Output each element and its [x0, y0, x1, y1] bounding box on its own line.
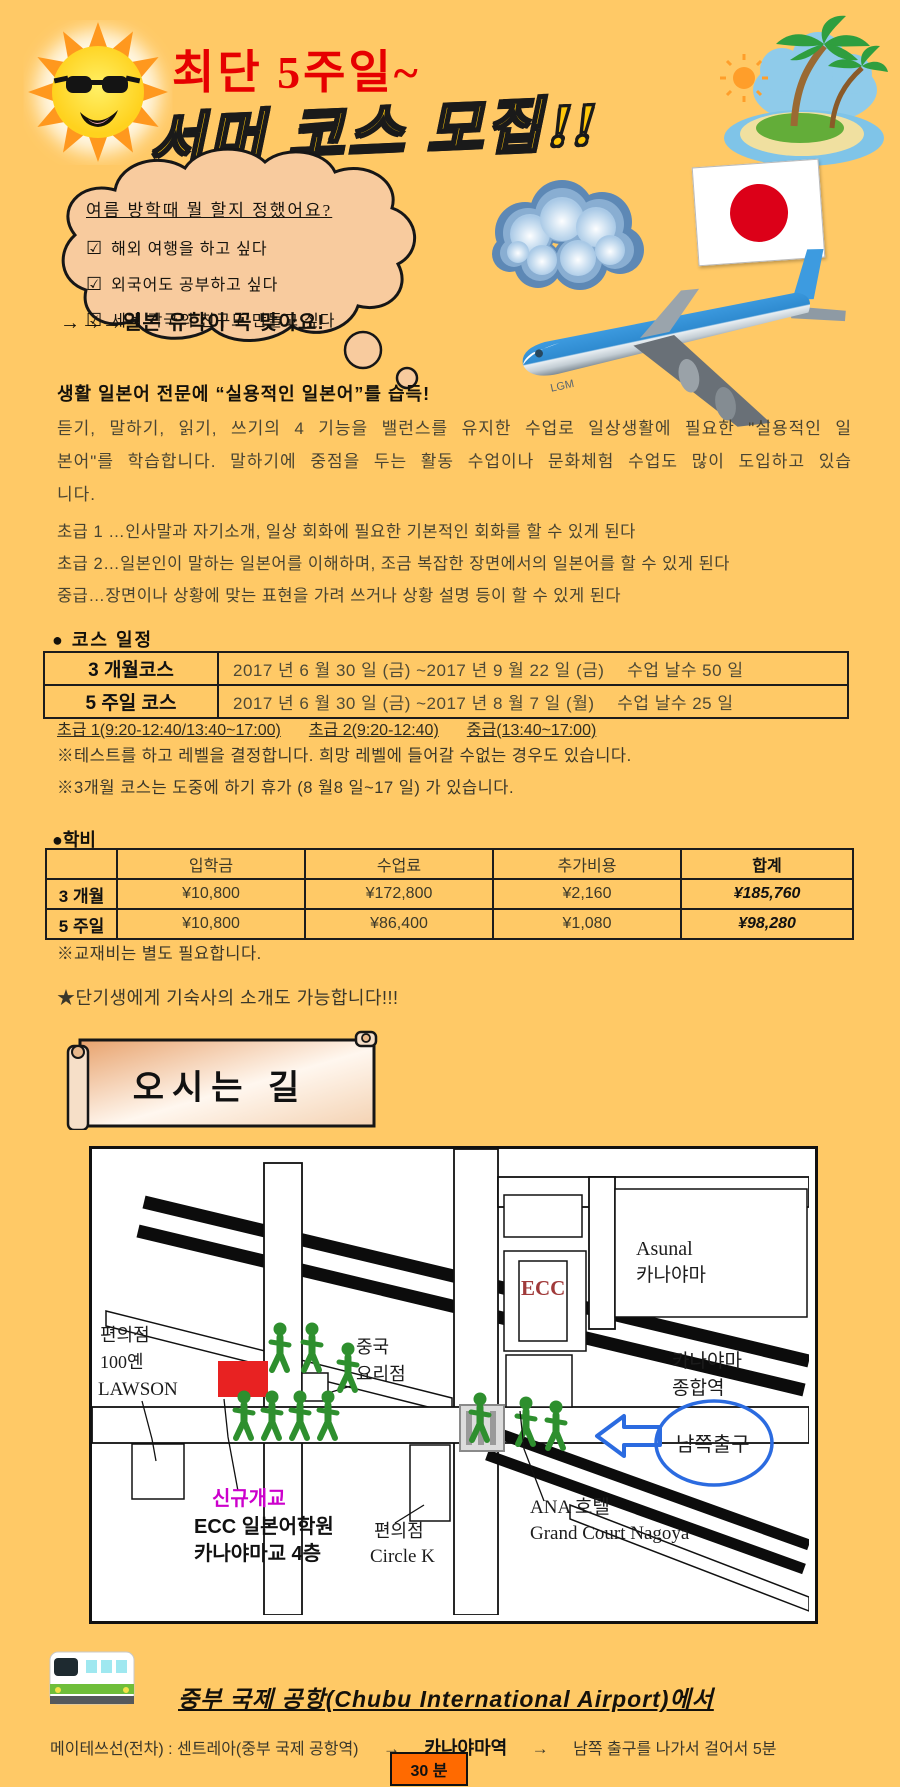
fee-row-label: 3 개월: [46, 879, 117, 909]
station-label: 종합역: [672, 1377, 724, 1399]
fee-row-label: 5 주일: [46, 909, 117, 939]
fee-extra: ¥2,160: [493, 879, 681, 909]
ana-hotel-label: ANA 호텔: [530, 1496, 610, 1518]
lawson-label: 편의점: [100, 1325, 150, 1345]
level-descriptions: 초급 1 …인사말과 자기소개, 일상 회화에 필요한 기본적인 회화를 할 수…: [57, 516, 867, 612]
time-segment: 초급 1(9:20-12:40/13:40~17:00): [57, 722, 281, 739]
bubble-item: ☑해외 여행을 하고 싶다: [86, 235, 416, 259]
time-segment: 초급 2(9:20-12:40): [309, 722, 439, 739]
column-header: [46, 849, 117, 879]
directions-banner: 오시는 길: [60, 1030, 380, 1130]
fee-total: ¥98,280: [681, 909, 853, 939]
chinese-restaurant-label: 중국: [356, 1337, 389, 1357]
time-segment: 중급(13:40~17:00): [467, 722, 597, 739]
station-label: 카나야마: [672, 1350, 742, 1372]
column-header: 수업료: [305, 849, 493, 879]
circle-k-label: Circle K: [370, 1546, 435, 1567]
checkbox-checked-icon: ☑: [86, 274, 103, 294]
japan-flag-circle: [728, 182, 790, 244]
fee-total: ¥185,760: [681, 879, 853, 909]
route-description: 메이테쓰선(전차) : 센트레아(중부 국제 공항역) → 카나야마역 → 남쪽…: [50, 1734, 895, 1760]
lawson-building: [132, 1444, 184, 1499]
level-line: 초급 1 …인사말과 자기소개, 일상 회화에 필요한 기본적인 회화를 할 수…: [57, 516, 867, 548]
course-name: 5 주일 코스: [44, 685, 218, 718]
schedule-heading: ● 코스 일정: [52, 626, 153, 652]
intro-paragraph: 듣기, 말하기, 읽기, 쓰기의 4 기능을 밸런스를 유지한 수업로 일상생활…: [57, 412, 852, 511]
map-road: [454, 1149, 498, 1615]
level-line: 초급 2…일본인이 말하는 일본어를 이해하며, 조금 복잡한 장면에서의 일본…: [57, 548, 867, 580]
asunal-label: 카나야마: [636, 1264, 706, 1286]
duration-badge: 30 분: [390, 1752, 468, 1786]
ana-hotel-label: Grand Court Nagoya: [530, 1523, 690, 1544]
bubble-question: 여름 방학때 뭘 할지 정했어요?: [86, 196, 416, 221]
ecc-label: ECC: [521, 1276, 565, 1300]
course-name: 3 개월코스: [44, 652, 218, 685]
schedule-table: 3 개월코스 2017 년 6 월 30 일 (금) ~2017 년 9 월 2…: [43, 651, 849, 719]
lawson-label: LAWSON: [98, 1379, 178, 1400]
materials-note: ※교재비는 별도 필요합니다.: [57, 940, 262, 964]
bubble-item: ☑외국어도 공부하고 싶다: [86, 271, 416, 295]
table-row: 5 주일 코스 2017 년 6 월 30 일 (금) ~2017 년 8 월 …: [44, 685, 848, 718]
school-floor-label: 카나야마교 4층: [194, 1542, 321, 1565]
fee-entry: ¥10,800: [117, 909, 305, 939]
course-period: 2017 년 6 월 30 일 (금) ~2017 년 9 월 22 일 (금)…: [218, 652, 848, 685]
checkbox-checked-icon: ☑: [86, 238, 103, 258]
table-row: 3 개월 ¥10,800 ¥172,800 ¥2,160 ¥185,760: [46, 879, 853, 909]
circle-k-label: 편의점: [374, 1521, 424, 1541]
arrow-icon: →: [532, 1739, 549, 1758]
column-header: 합계: [681, 849, 853, 879]
column-header: 추가비용: [493, 849, 681, 879]
schedule-note: ※3개월 코스는 도중에 하기 휴가 (8 월8 일~17 일) 가 있습니다.: [57, 774, 514, 798]
table-header-row: 입학금 수업료 추가비용 합계: [46, 849, 853, 879]
table-row: 5 주일 ¥10,800 ¥86,400 ¥1,080 ¥98,280: [46, 909, 853, 939]
route-part: 남쪽 출구를 나가서 걸어서 5분: [573, 1741, 776, 1758]
south-exit-label: 남쪽출구: [676, 1433, 750, 1456]
fees-table: 입학금 수업료 추가비용 합계 3 개월 ¥10,800 ¥172,800 ¥2…: [45, 848, 854, 940]
new-school-label: 신규개교: [212, 1487, 286, 1510]
fee-tuition: ¥172,800: [305, 879, 493, 909]
table-row: 3 개월코스 2017 년 6 월 30 일 (금) ~2017 년 9 월 2…: [44, 652, 848, 685]
level-line: 중급…장면이나 상황에 맞는 표현을 가려 쓰거나 상황 설명 등이 할 수 있…: [57, 580, 867, 612]
column-header: 입학금: [117, 849, 305, 879]
school-name-label: ECC 일본어학원: [194, 1515, 334, 1538]
access-map: ECC Asunal 카나야마 카나야마 종합역 편의점 100옌 LAWSON…: [89, 1146, 818, 1624]
map-building: [506, 1355, 572, 1407]
directions-banner-title: 오시는 길: [60, 1060, 380, 1109]
fee-entry: ¥10,800: [117, 879, 305, 909]
dormitory-note: ★단기생에게 기숙사의 소개도 가능합니다!!!: [57, 984, 399, 1010]
fee-tuition: ¥86,400: [305, 909, 493, 939]
route-part: 메이테쓰선(전차) : 센트레아(중부 국제 공항역): [50, 1741, 359, 1758]
ecc-building-inner: [519, 1261, 567, 1341]
map-road: [589, 1177, 615, 1329]
chinese-restaurant-label: 요리점: [356, 1364, 406, 1384]
airplane-label: LGM: [549, 378, 575, 395]
intro-heading: 생활 일본어 전문에 “실용적인 일본어”를 습득!: [57, 380, 430, 406]
train-icon: [48, 1648, 136, 1712]
fee-extra: ¥1,080: [493, 909, 681, 939]
island-icon: [712, 12, 888, 174]
map-building: [504, 1195, 582, 1237]
asunal-label: Asunal: [636, 1238, 693, 1260]
flyer-canvas: 최단 5주일~ 서머 코스 모집!!: [0, 0, 900, 1787]
bubble-conclusion: →→→일본 유학이 꼭 맞아요!: [60, 306, 325, 335]
schedule-note: ※테스트를 하고 레벨을 결정합니다. 희망 레벨에 들어갈 수없는 경우도 있…: [57, 742, 632, 766]
lawson-label: 100옌: [100, 1352, 144, 1372]
class-times: 초급 1(9:20-12:40/13:40~17:00)초급 2(9:20-12…: [57, 716, 624, 740]
airport-access-heading: 중부 국제 공항(Chubu International Airport)에서: [178, 1680, 714, 1714]
course-period: 2017 년 6 월 30 일 (금) ~2017 년 8 월 7 일 (월) …: [218, 685, 848, 718]
